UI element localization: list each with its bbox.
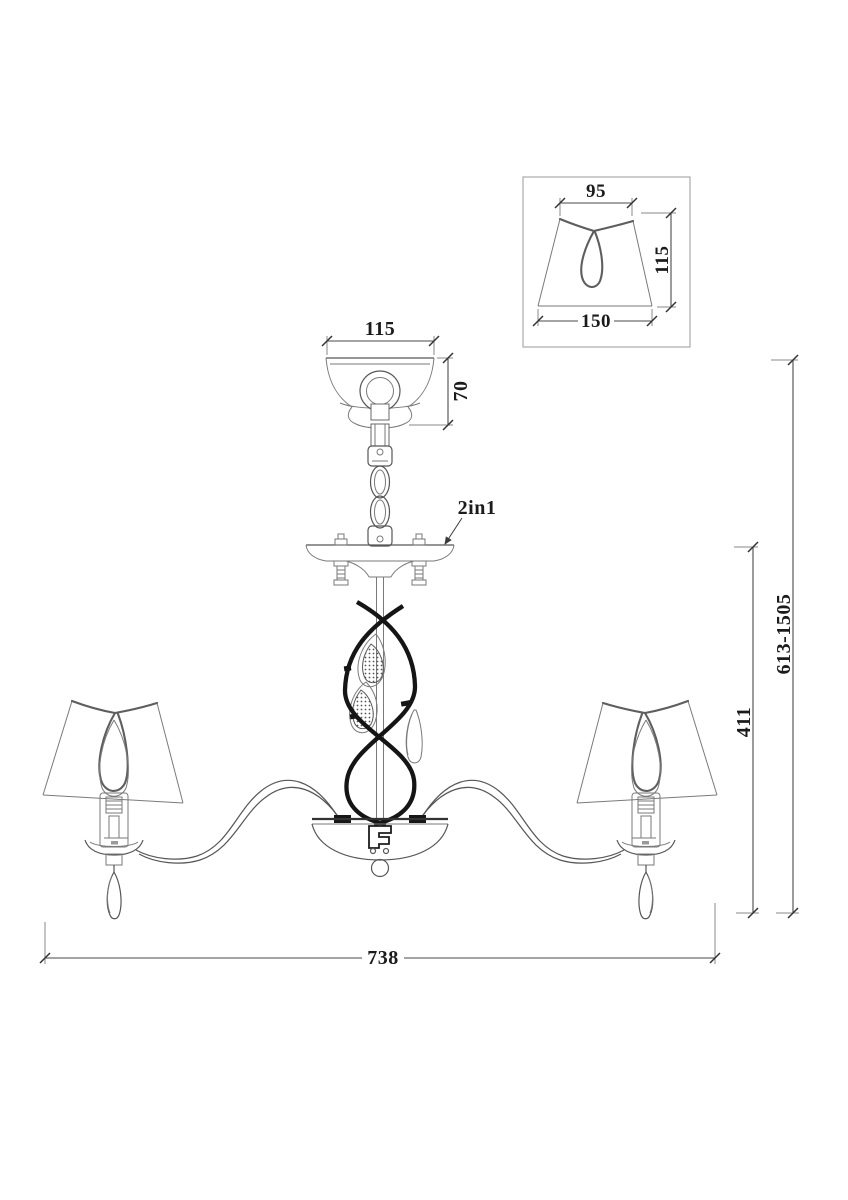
dim-label-canopy-height: 70 [450,381,472,402]
callout-leader-line [445,518,462,544]
dim-canopy-height: 70 [409,353,472,430]
plate-bolt [334,561,426,585]
dim-fixture-width: 738 [40,903,720,969]
faceted-crystal [363,644,384,683]
mounting-bracket [369,826,391,848]
right-lamp [577,701,717,919]
dim-body-height: 411 [733,542,759,918]
shade-detail-box: 95 150 115 [523,177,690,347]
dim-label-shade-bottom-width: 150 [581,311,611,332]
bracket-foot [384,849,389,854]
cup-stem [371,424,389,446]
technical-drawing-page: 95 150 115 115 [0,0,848,1200]
dim-label-shade-height: 115 [652,246,673,275]
chandelier-drawing: 95 150 115 115 [0,0,848,1200]
callout-label-2in1: 2in1 [458,497,497,519]
ceiling-cup [326,358,434,446]
finial-ball [372,860,389,877]
dim-label-overall-height: 613-1505 [773,594,795,675]
left-lamp [43,701,183,919]
dim-label-shade-top-width: 95 [586,181,606,202]
dim-overall-height: 613-1505 [771,355,799,918]
left-arm [136,780,342,863]
bracket-foot [371,849,376,854]
dim-label-canopy-width: 115 [365,318,395,340]
mount-type-callout: 2in1 [445,497,496,544]
suspension-chain [368,446,392,546]
dim-label-fixture-width: 738 [367,947,399,969]
center-column [344,577,422,824]
dim-label-body-height: 411 [733,707,755,737]
bottom-bowl [312,815,448,877]
right-arm [418,780,624,863]
dim-canopy-width: 115 [322,318,439,355]
